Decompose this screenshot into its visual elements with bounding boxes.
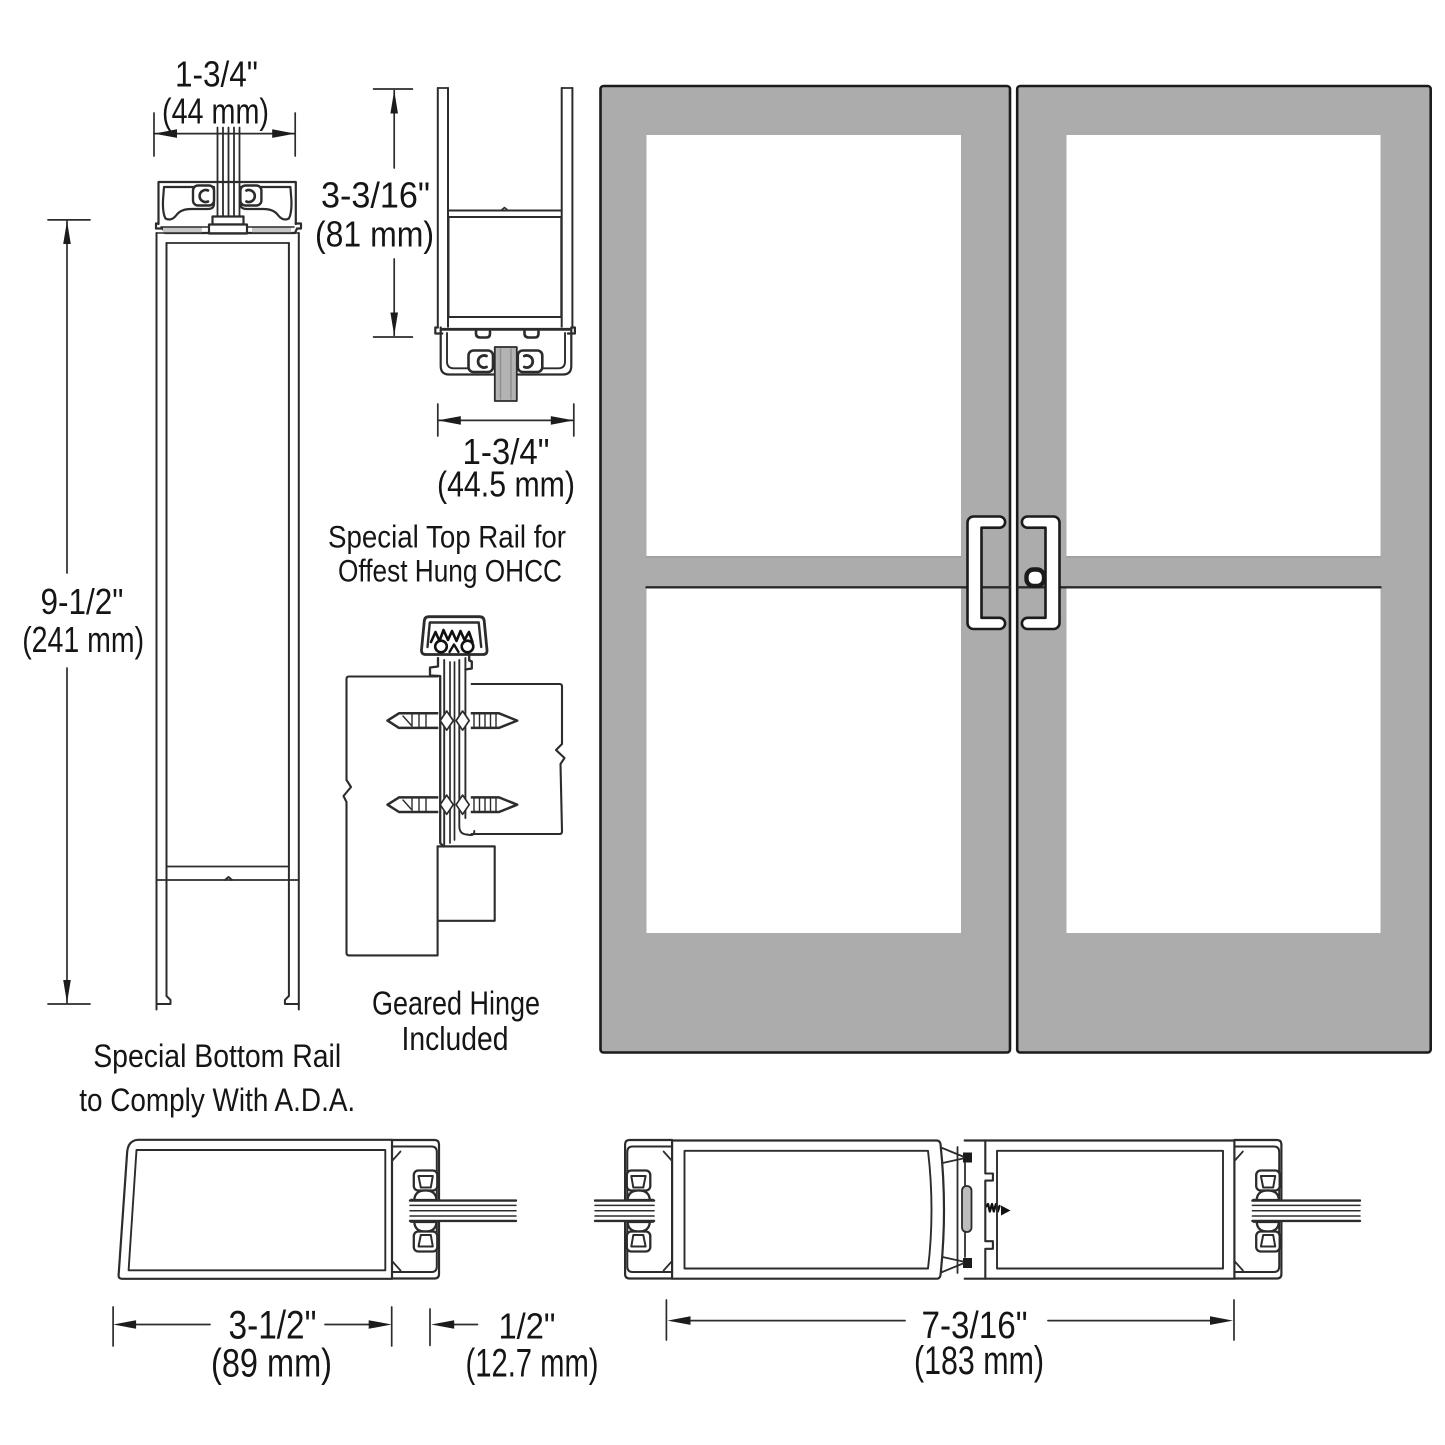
svg-text:(89 mm): (89 mm) — [211, 1342, 332, 1386]
svg-text:to Comply With A.D.A.: to Comply With A.D.A. — [79, 1082, 355, 1118]
svg-text:Special Top Rail for: Special Top Rail for — [328, 519, 566, 555]
svg-text:Included: Included — [402, 1020, 509, 1057]
svg-text:(81 mm): (81 mm) — [315, 214, 434, 255]
svg-text:1/2": 1/2" — [499, 1306, 556, 1347]
svg-text:Geared Hinge: Geared Hinge — [372, 985, 540, 1022]
svg-text:(44 mm): (44 mm) — [162, 91, 269, 132]
svg-text:Special Bottom Rail: Special Bottom Rail — [93, 1038, 341, 1074]
svg-text:1-3/4": 1-3/4" — [175, 54, 258, 95]
svg-text:(241 mm): (241 mm) — [22, 619, 144, 660]
svg-text:(44.5 mm): (44.5 mm) — [437, 464, 575, 505]
svg-text:(183 mm): (183 mm) — [914, 1339, 1044, 1383]
svg-text:3-3/16": 3-3/16" — [321, 175, 430, 216]
svg-text:(12.7 mm): (12.7 mm) — [466, 1342, 599, 1386]
svg-text:Offest Hung OHCC: Offest Hung OHCC — [338, 552, 562, 588]
svg-text:9-1/2": 9-1/2" — [41, 581, 124, 622]
